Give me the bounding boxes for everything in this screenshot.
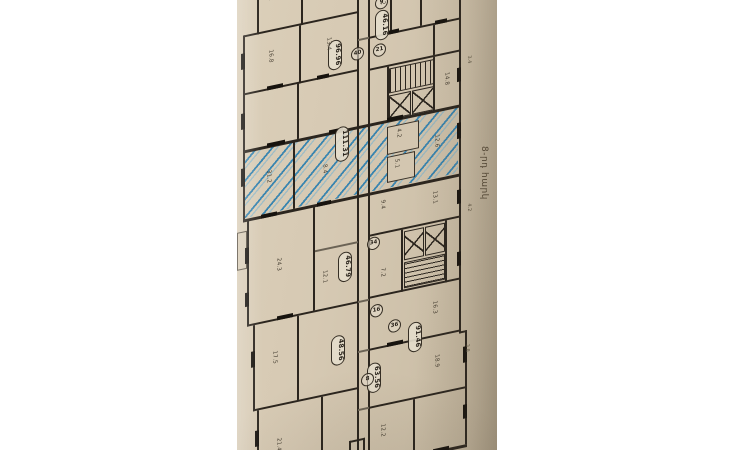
room-area-label: 7.2 <box>379 268 385 279</box>
window-marker <box>457 251 461 266</box>
dimension-label: 4.2 <box>466 203 471 212</box>
wall <box>253 387 359 412</box>
room-area-label: 12.2 <box>379 424 385 438</box>
wall <box>253 325 255 411</box>
floor-label: 8-րդ հարկ <box>479 146 489 200</box>
window-marker <box>457 67 461 82</box>
wall <box>401 230 403 292</box>
wall <box>301 0 303 25</box>
wall <box>247 301 359 327</box>
wall <box>243 152 245 221</box>
wall <box>297 83 299 139</box>
window-marker <box>433 446 449 450</box>
window-marker <box>255 430 259 447</box>
window-marker <box>241 113 245 130</box>
area-badge: 48.56 <box>331 334 345 367</box>
wall <box>357 0 359 450</box>
wall <box>315 241 358 252</box>
room-area-label: 18.9 <box>433 354 439 368</box>
unit-number-circle: 36 <box>388 318 401 334</box>
room-area-label: 16.3 <box>431 300 437 314</box>
room-area-label: 31.2 <box>265 170 271 184</box>
room-area-label: 17.5 <box>271 350 277 364</box>
window-marker <box>387 340 403 347</box>
window-marker <box>241 168 245 187</box>
screenshot-canvas: 46.16 96.96 111.31 46.79 48.56 63.56 91.… <box>0 0 730 450</box>
wall <box>321 397 323 450</box>
room-area-label: 5.1 <box>393 159 399 170</box>
room-area-label: 16.8 <box>267 49 273 63</box>
unit-number-circle: 21 <box>373 42 386 58</box>
wall <box>257 0 259 35</box>
unit-number-circle: 16 <box>370 303 383 319</box>
elevator-icon <box>404 227 424 260</box>
wall <box>370 386 465 408</box>
window-marker <box>245 247 249 264</box>
wall <box>413 399 415 450</box>
room-area-label: 15.2 <box>267 0 273 2</box>
elevator-icon <box>412 86 434 115</box>
unit-number-circle: 34 <box>367 235 380 251</box>
room-area-label: 9.4 <box>379 200 385 211</box>
wall <box>390 0 392 32</box>
wall <box>297 316 299 400</box>
elevator-icon <box>425 223 445 256</box>
room-area-label: 4.2 <box>395 128 401 139</box>
window-marker <box>277 313 293 320</box>
window-marker <box>267 83 283 90</box>
room-area-label: 21.4 <box>275 438 281 450</box>
wall <box>243 69 359 96</box>
dimension-label: 3.8 <box>464 344 469 353</box>
room-area-label: 12.1 <box>321 270 327 284</box>
area-badge: 91.46 <box>408 321 422 354</box>
area-badge: 46.79 <box>338 250 352 283</box>
window-marker <box>251 351 255 368</box>
area-badge: 111.31 <box>335 125 349 163</box>
dimension-label: 3.4 <box>466 55 471 64</box>
window-marker <box>463 404 467 419</box>
room-area-label: 8.4 <box>321 164 327 175</box>
room-area-label: 12.6 <box>433 134 439 148</box>
wall <box>420 0 422 26</box>
plan-canvas: 46.16 96.96 111.31 46.79 48.56 63.56 91.… <box>237 0 472 450</box>
window-marker <box>457 189 461 204</box>
wall <box>445 220 447 282</box>
wall <box>299 25 301 83</box>
window-marker <box>317 73 329 80</box>
wall <box>313 206 315 310</box>
area-badge: 46.16 <box>375 9 389 42</box>
window-marker <box>245 292 249 307</box>
wall <box>247 220 249 326</box>
window-marker <box>241 53 245 70</box>
room-area-label: 13.4 <box>325 37 331 51</box>
room-area-label: 13.1 <box>431 190 437 204</box>
room-area-label: 24.3 <box>275 258 281 272</box>
wall <box>433 25 435 55</box>
hatch-overlay <box>244 107 458 218</box>
window-marker <box>435 18 447 25</box>
floorplan-photo: 46.16 96.96 111.31 46.79 48.56 63.56 91.… <box>237 0 497 450</box>
room-area-label: 14.8 <box>443 72 449 86</box>
wall <box>293 142 295 209</box>
unit-number-circle: 40 <box>351 46 364 62</box>
window-marker <box>457 122 461 139</box>
